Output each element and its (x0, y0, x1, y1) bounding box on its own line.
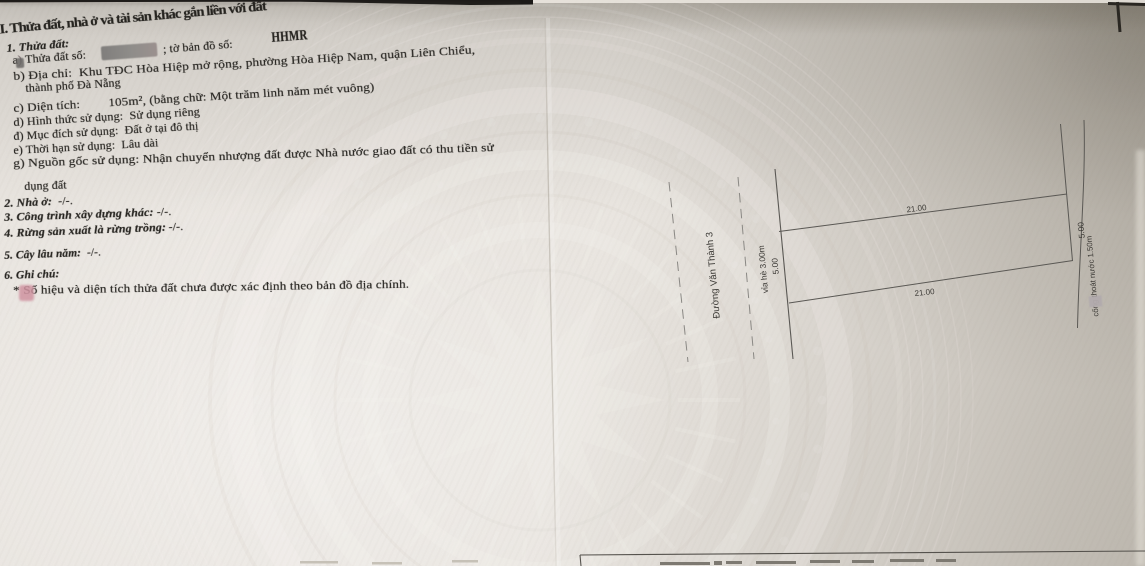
svg-text:5.00: 5.00 (769, 257, 780, 274)
svg-text:21.00: 21.00 (914, 287, 935, 298)
svg-text:5.00: 5.00 (1075, 221, 1086, 238)
svg-text:Đường Văn Thành 3: Đường Văn Thành 3 (704, 231, 723, 319)
svg-text:vỉa hè 3.00m: vỉa hè 3.00m (756, 245, 770, 294)
